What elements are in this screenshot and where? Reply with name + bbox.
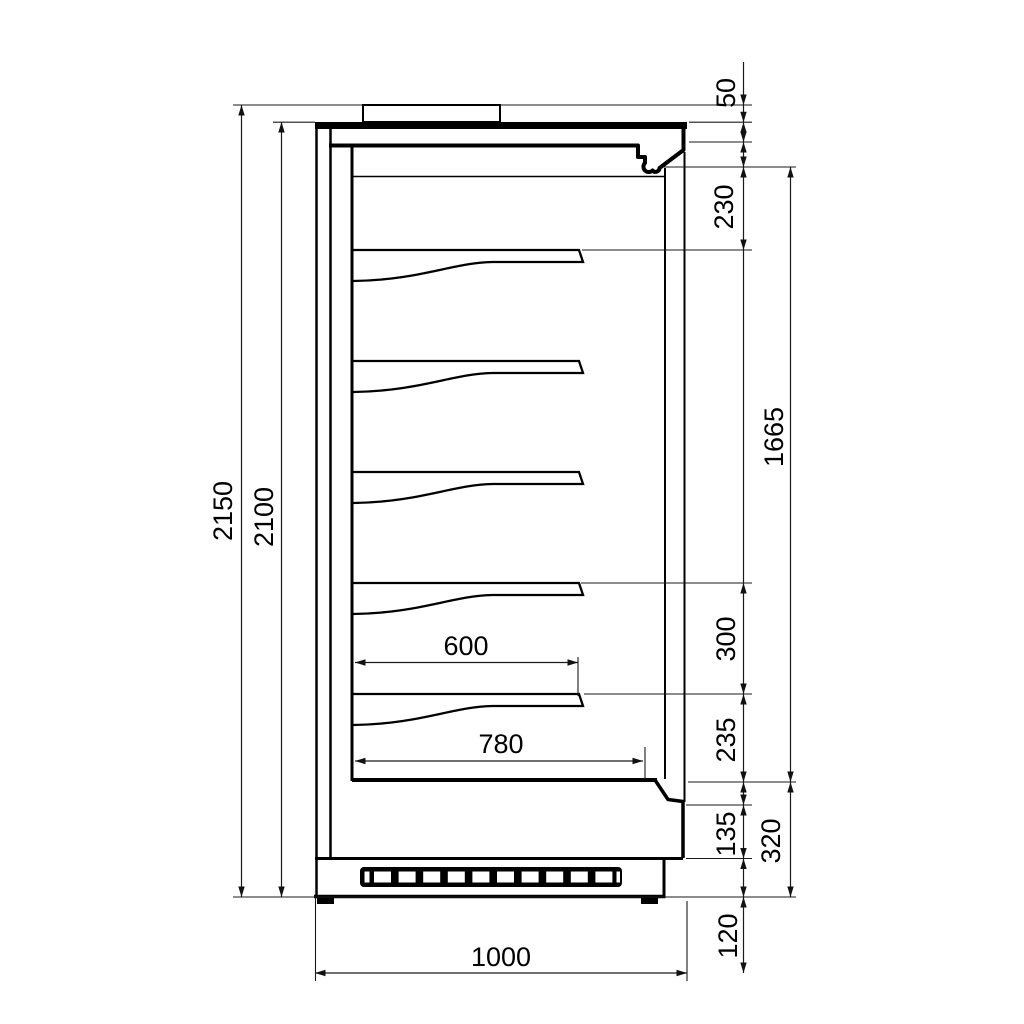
dim-label-opening-height: 1665	[759, 407, 789, 467]
dimension-lines: 2150 2100 50 230 1665 300 235 135 320 12…	[208, 62, 796, 981]
dim-label-body-height: 2100	[249, 487, 279, 547]
multideck-section-drawing: 2150 2100 50 230 1665 300 235 135 320 12…	[0, 0, 1024, 1024]
bottom-deck	[352, 778, 657, 782]
dim-label-base-bottom: 120	[713, 913, 743, 958]
canopy-profile	[329, 127, 684, 172]
shelf-2	[353, 361, 583, 392]
top-panel	[315, 122, 687, 129]
shelf-4	[353, 583, 583, 614]
foot-rear	[317, 895, 334, 904]
dim-label-bumper-height: 135	[711, 811, 741, 856]
shelf-1	[353, 250, 583, 281]
dim-label-total-height: 2150	[208, 481, 238, 541]
dim-label-canopy-depth: 230	[709, 184, 739, 229]
dim-label-lower-gap: 235	[711, 717, 741, 762]
dim-label-top-unit: 50	[711, 78, 741, 108]
dim-label-overall-depth: 1000	[471, 942, 531, 972]
shelf-5	[353, 694, 583, 725]
dim-label-base-height: 320	[756, 818, 786, 863]
dim-label-shelf-spacing: 300	[711, 616, 741, 661]
drawing-page: 2150 2100 50 230 1665 300 235 135 320 12…	[0, 0, 1024, 1024]
dim-label-deck-depth: 780	[478, 729, 523, 759]
foot-front	[641, 895, 658, 904]
dim-label-shelf-depth: 600	[443, 631, 488, 661]
cabinet-body	[314, 105, 687, 904]
top-unit-box	[363, 105, 500, 122]
ventilation-grille	[360, 867, 622, 887]
bumper-profile	[655, 780, 683, 858]
dimension-labels: 2150 2100 50 230 1665 300 235 135 320 12…	[208, 78, 789, 972]
shelf-3	[353, 472, 583, 503]
